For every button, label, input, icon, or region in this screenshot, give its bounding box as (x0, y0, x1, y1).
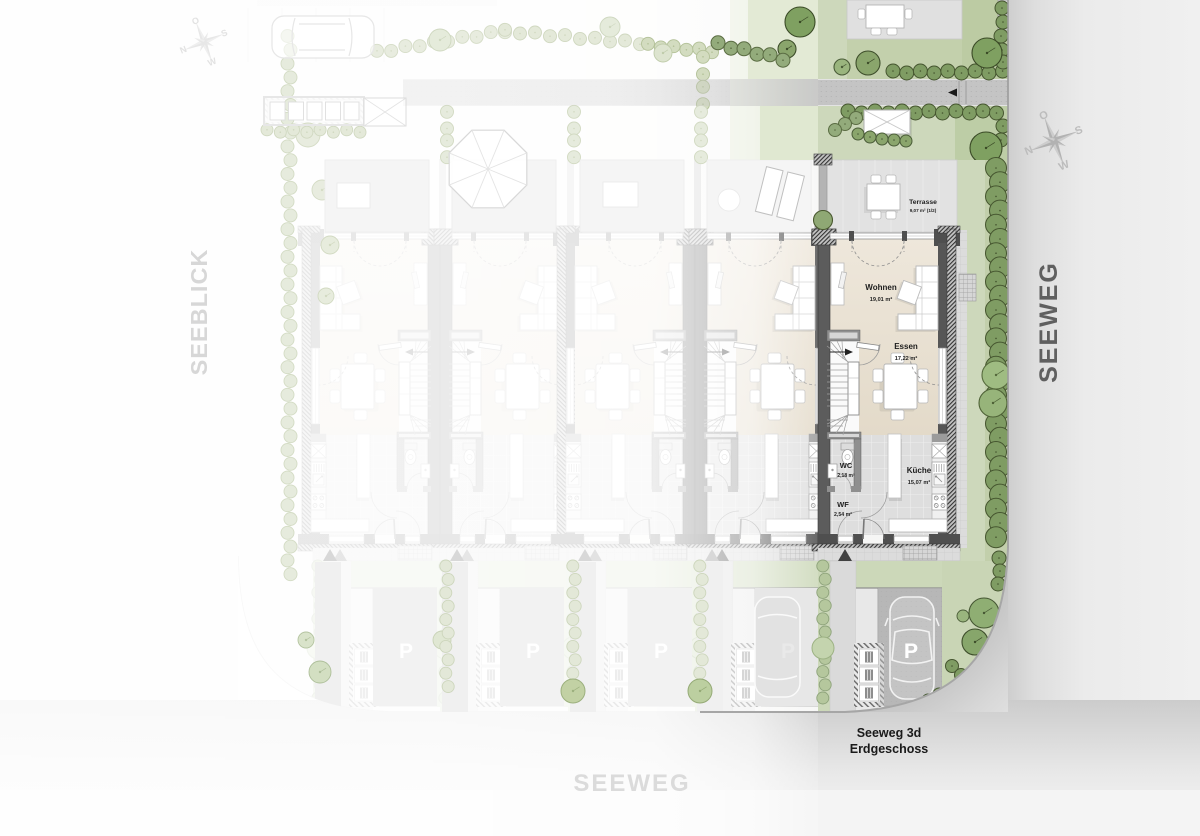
svg-text:P: P (654, 640, 668, 663)
svg-text:Wohnen: Wohnen (865, 283, 897, 292)
svg-text:Küche: Küche (907, 466, 932, 475)
svg-text:SEEWEG: SEEWEG (1035, 261, 1063, 383)
svg-text:P: P (904, 640, 918, 663)
svg-text:WC: WC (840, 461, 853, 470)
svg-text:Seeweg 3d: Seeweg 3d (857, 726, 922, 740)
svg-text:WF: WF (837, 500, 849, 509)
svg-text:SEEBLICK: SEEBLICK (186, 249, 212, 376)
svg-text:Essen: Essen (894, 342, 918, 351)
svg-text:17,22 m²: 17,22 m² (895, 355, 918, 362)
svg-text:15,07 m²: 15,07 m² (908, 479, 931, 486)
svg-text:19,01 m²: 19,01 m² (870, 296, 893, 303)
svg-text:Terrasse: Terrasse (909, 199, 937, 206)
svg-text:2,54 m²: 2,54 m² (834, 512, 852, 518)
svg-text:2,18 m²: 2,18 m² (837, 473, 855, 479)
svg-text:P: P (526, 640, 540, 663)
svg-text:Erdgeschoss: Erdgeschoss (850, 742, 929, 756)
svg-text:P: P (399, 640, 413, 663)
svg-text:SEEWEG: SEEWEG (573, 770, 690, 797)
svg-text:9,07 m² (1/2): 9,07 m² (1/2) (910, 208, 937, 213)
